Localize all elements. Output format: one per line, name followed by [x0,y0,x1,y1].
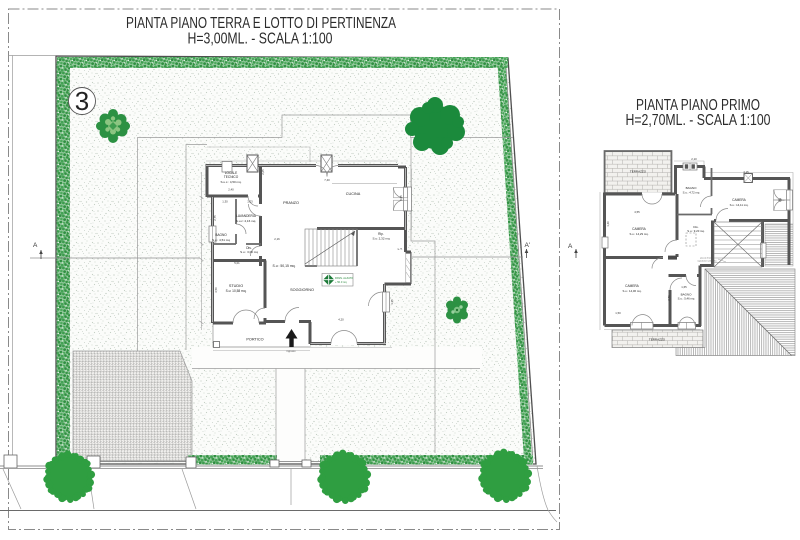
svg-text:+ 50.0 mq: + 50.0 mq [335,280,347,284]
svg-text:4,20: 4,20 [338,318,344,322]
svg-text:S.u.: 14,11 mq.: S.u.: 14,11 mq. [730,203,749,207]
svg-text:PANN. ALZATO: PANN. ALZATO [335,276,353,280]
svg-text:3,05: 3,05 [399,195,403,201]
svg-text:CAMERA: CAMERA [625,284,640,288]
svg-text:S.u: 10,58 mq.: S.u: 10,58 mq. [226,289,247,293]
svg-text:1,03: 1,03 [247,200,253,204]
svg-text:S.u: 2,32 mq: S.u: 2,32 mq [372,237,389,241]
svg-text:S.u.: 14,06 mq.: S.u.: 14,06 mq. [623,289,642,293]
svg-text:LAVANDERIA: LAVANDERIA [236,214,257,218]
svg-text:L.T.: L.T. [398,247,403,251]
svg-text:Rip.: Rip. [378,232,384,236]
svg-text:TERRAZZO: TERRAZZO [649,338,666,342]
svg-text:S.u.: 5,46 mq: S.u.: 5,46 mq [678,297,695,301]
svg-text:5,01: 5,01 [234,261,240,265]
svg-text:1,50: 1,50 [615,311,621,315]
svg-text:3: 3 [75,86,89,116]
svg-text:2,16: 2,16 [274,237,280,241]
svg-text:PORTICO: PORTICO [246,338,263,342]
svg-text:S.u.c.: 4,50 mq.: S.u.c.: 4,50 mq. [220,180,241,184]
svg-text:PRANZO: PRANZO [283,201,299,205]
svg-text:3,50: 3,50 [214,287,218,293]
svg-text:1,65: 1,65 [681,285,687,289]
svg-text:S.u.: 4,51 mq: S.u.: 4,51 mq [212,238,230,242]
svg-text:CAMERA: CAMERA [632,227,647,231]
svg-text:S.u.: 9,20 mq.: S.u.: 9,20 mq. [687,229,705,233]
svg-text:H=3,00ML. - SCALA 1:100: H=3,00ML. - SCALA 1:100 [188,31,333,48]
svg-text:2,65: 2,65 [261,169,265,175]
svg-text:CAMERA: CAMERA [732,198,747,202]
svg-text:S.u.: 14,29 mq.: S.u.: 14,29 mq. [630,232,649,236]
svg-text:1,30: 1,30 [222,200,228,204]
svg-text:S.u.: 3,00 mq: S.u.: 3,00 mq [240,250,258,254]
svg-text:2,40: 2,40 [228,188,234,192]
svg-text:PIANTA PIANO TERRA E LOTTO DI: PIANTA PIANO TERRA E LOTTO DI PERTINENZA [126,15,396,32]
svg-text:TECNICO: TECNICO [224,175,239,179]
svg-text:4,15: 4,15 [743,170,749,174]
svg-text:1,40: 1,40 [606,221,610,227]
svg-text:A: A [568,243,573,250]
svg-text:2,10: 2,10 [691,157,697,161]
svg-text:2,75: 2,75 [213,215,217,221]
svg-text:H=2,70ML. - SCALA 1:100: H=2,70ML. - SCALA 1:100 [626,112,771,129]
svg-text:ingresso: ingresso [286,350,296,353]
svg-text:1,35: 1,35 [390,299,394,305]
svg-text:SOGGIORNO: SOGGIORNO [290,288,314,292]
svg-text:2,70: 2,70 [667,295,671,301]
svg-text:BAGNO: BAGNO [215,233,227,237]
svg-text:passo d'uomo: passo d'uomo [700,258,714,260]
svg-text:7,40: 7,40 [324,178,330,182]
svg-text:CUCINA: CUCINA [346,192,361,196]
svg-text:ispezione sottotetto: ispezione sottotetto [698,260,718,263]
svg-text:4,55: 4,55 [634,210,640,214]
svg-text:S.u.c: 4,16 mq.: S.u.c: 4,16 mq. [236,219,256,223]
svg-text:S.u : 50,15 mq.: S.u : 50,15 mq. [273,264,296,268]
svg-text:A': A' [525,242,531,249]
svg-text:A: A [33,242,38,249]
svg-text:TERRAZZO: TERRAZZO [630,170,647,174]
svg-text:S.u.: 4,72 mq: S.u.: 4,72 mq [683,191,700,195]
svg-text:STUDIO: STUDIO [229,284,243,288]
svg-text:BAGNO: BAGNO [686,186,698,190]
